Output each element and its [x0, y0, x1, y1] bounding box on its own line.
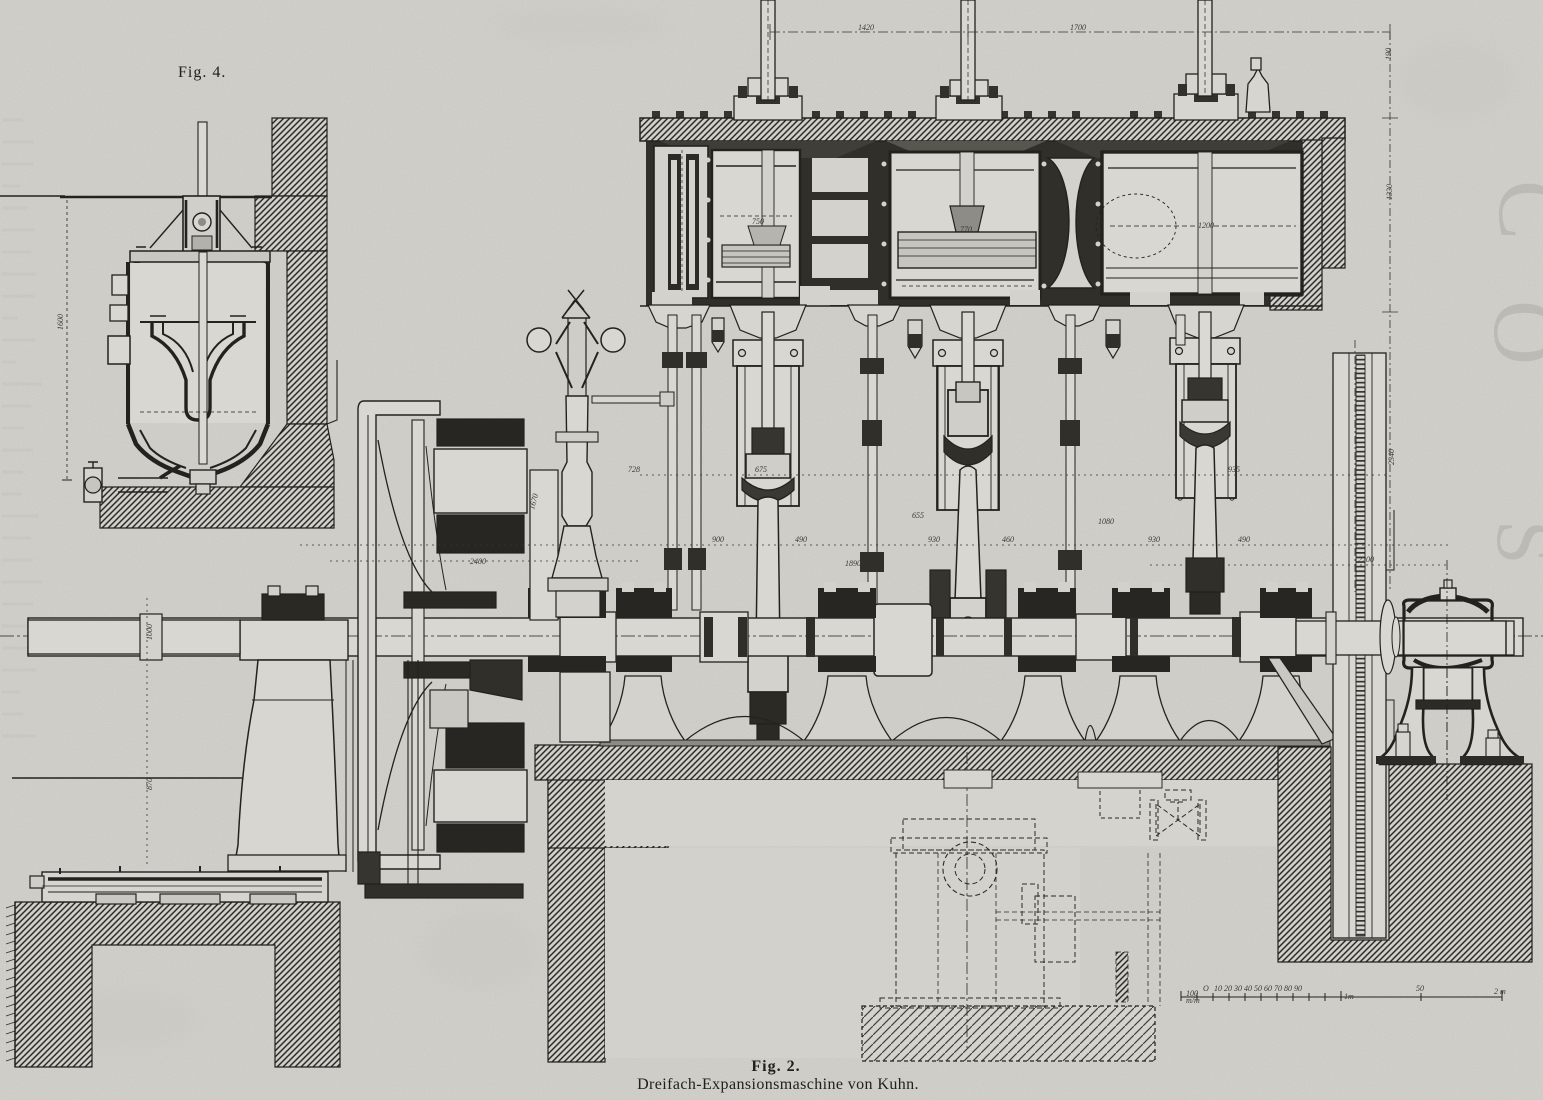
svg-text:930: 930 [928, 535, 940, 544]
svg-text:Dreifach-Expansionsmaschine vo: Dreifach-Expansionsmaschine von Kuhn. [637, 1076, 919, 1093]
svg-text:935: 935 [1228, 465, 1240, 474]
svg-text:750: 750 [752, 217, 764, 226]
svg-text:50: 50 [1416, 984, 1424, 993]
svg-text:1200: 1200 [1198, 221, 1214, 230]
svg-text:675: 675 [755, 465, 767, 474]
svg-text:870: 870 [145, 778, 154, 790]
svg-text:2340: 2340 [1387, 449, 1396, 465]
svg-text:Fig. 4.: Fig. 4. [178, 64, 226, 81]
svg-text:2 m: 2 m [1494, 987, 1506, 996]
svg-text:1330: 1330 [1385, 184, 1394, 200]
svg-text:460: 460 [1002, 535, 1014, 544]
svg-text:10 20 30 40 50 60 70 80 90: 10 20 30 40 50 60 70 80 90 [1214, 984, 1302, 993]
svg-text:900: 900 [712, 535, 724, 544]
svg-text:2200: 2200 [1358, 555, 1374, 564]
svg-text:C: C [1480, 180, 1543, 240]
svg-text:490: 490 [1238, 535, 1250, 544]
svg-text:190: 190 [1384, 48, 1393, 60]
svg-text:728: 728 [628, 465, 640, 474]
svg-text:2400: 2400 [470, 557, 486, 566]
svg-text:770: 770 [960, 225, 972, 234]
svg-text:1890: 1890 [845, 559, 861, 568]
svg-text:1m: 1m [1344, 992, 1354, 1001]
svg-text:1700: 1700 [1070, 23, 1086, 32]
svg-text:O: O [1475, 300, 1543, 365]
svg-text:m/m: m/m [1186, 996, 1200, 1005]
svg-text:S: S [1480, 520, 1543, 565]
svg-text:655: 655 [912, 511, 924, 520]
svg-text:1080: 1080 [1098, 517, 1114, 526]
svg-text:490: 490 [795, 535, 807, 544]
svg-text:O: O [1203, 984, 1209, 993]
svg-text:1600: 1600 [56, 314, 65, 330]
svg-text:Fig. 2.: Fig. 2. [751, 1058, 800, 1075]
svg-text:1000: 1000 [145, 624, 154, 640]
svg-text:930: 930 [1148, 535, 1160, 544]
svg-text:1420: 1420 [858, 23, 874, 32]
